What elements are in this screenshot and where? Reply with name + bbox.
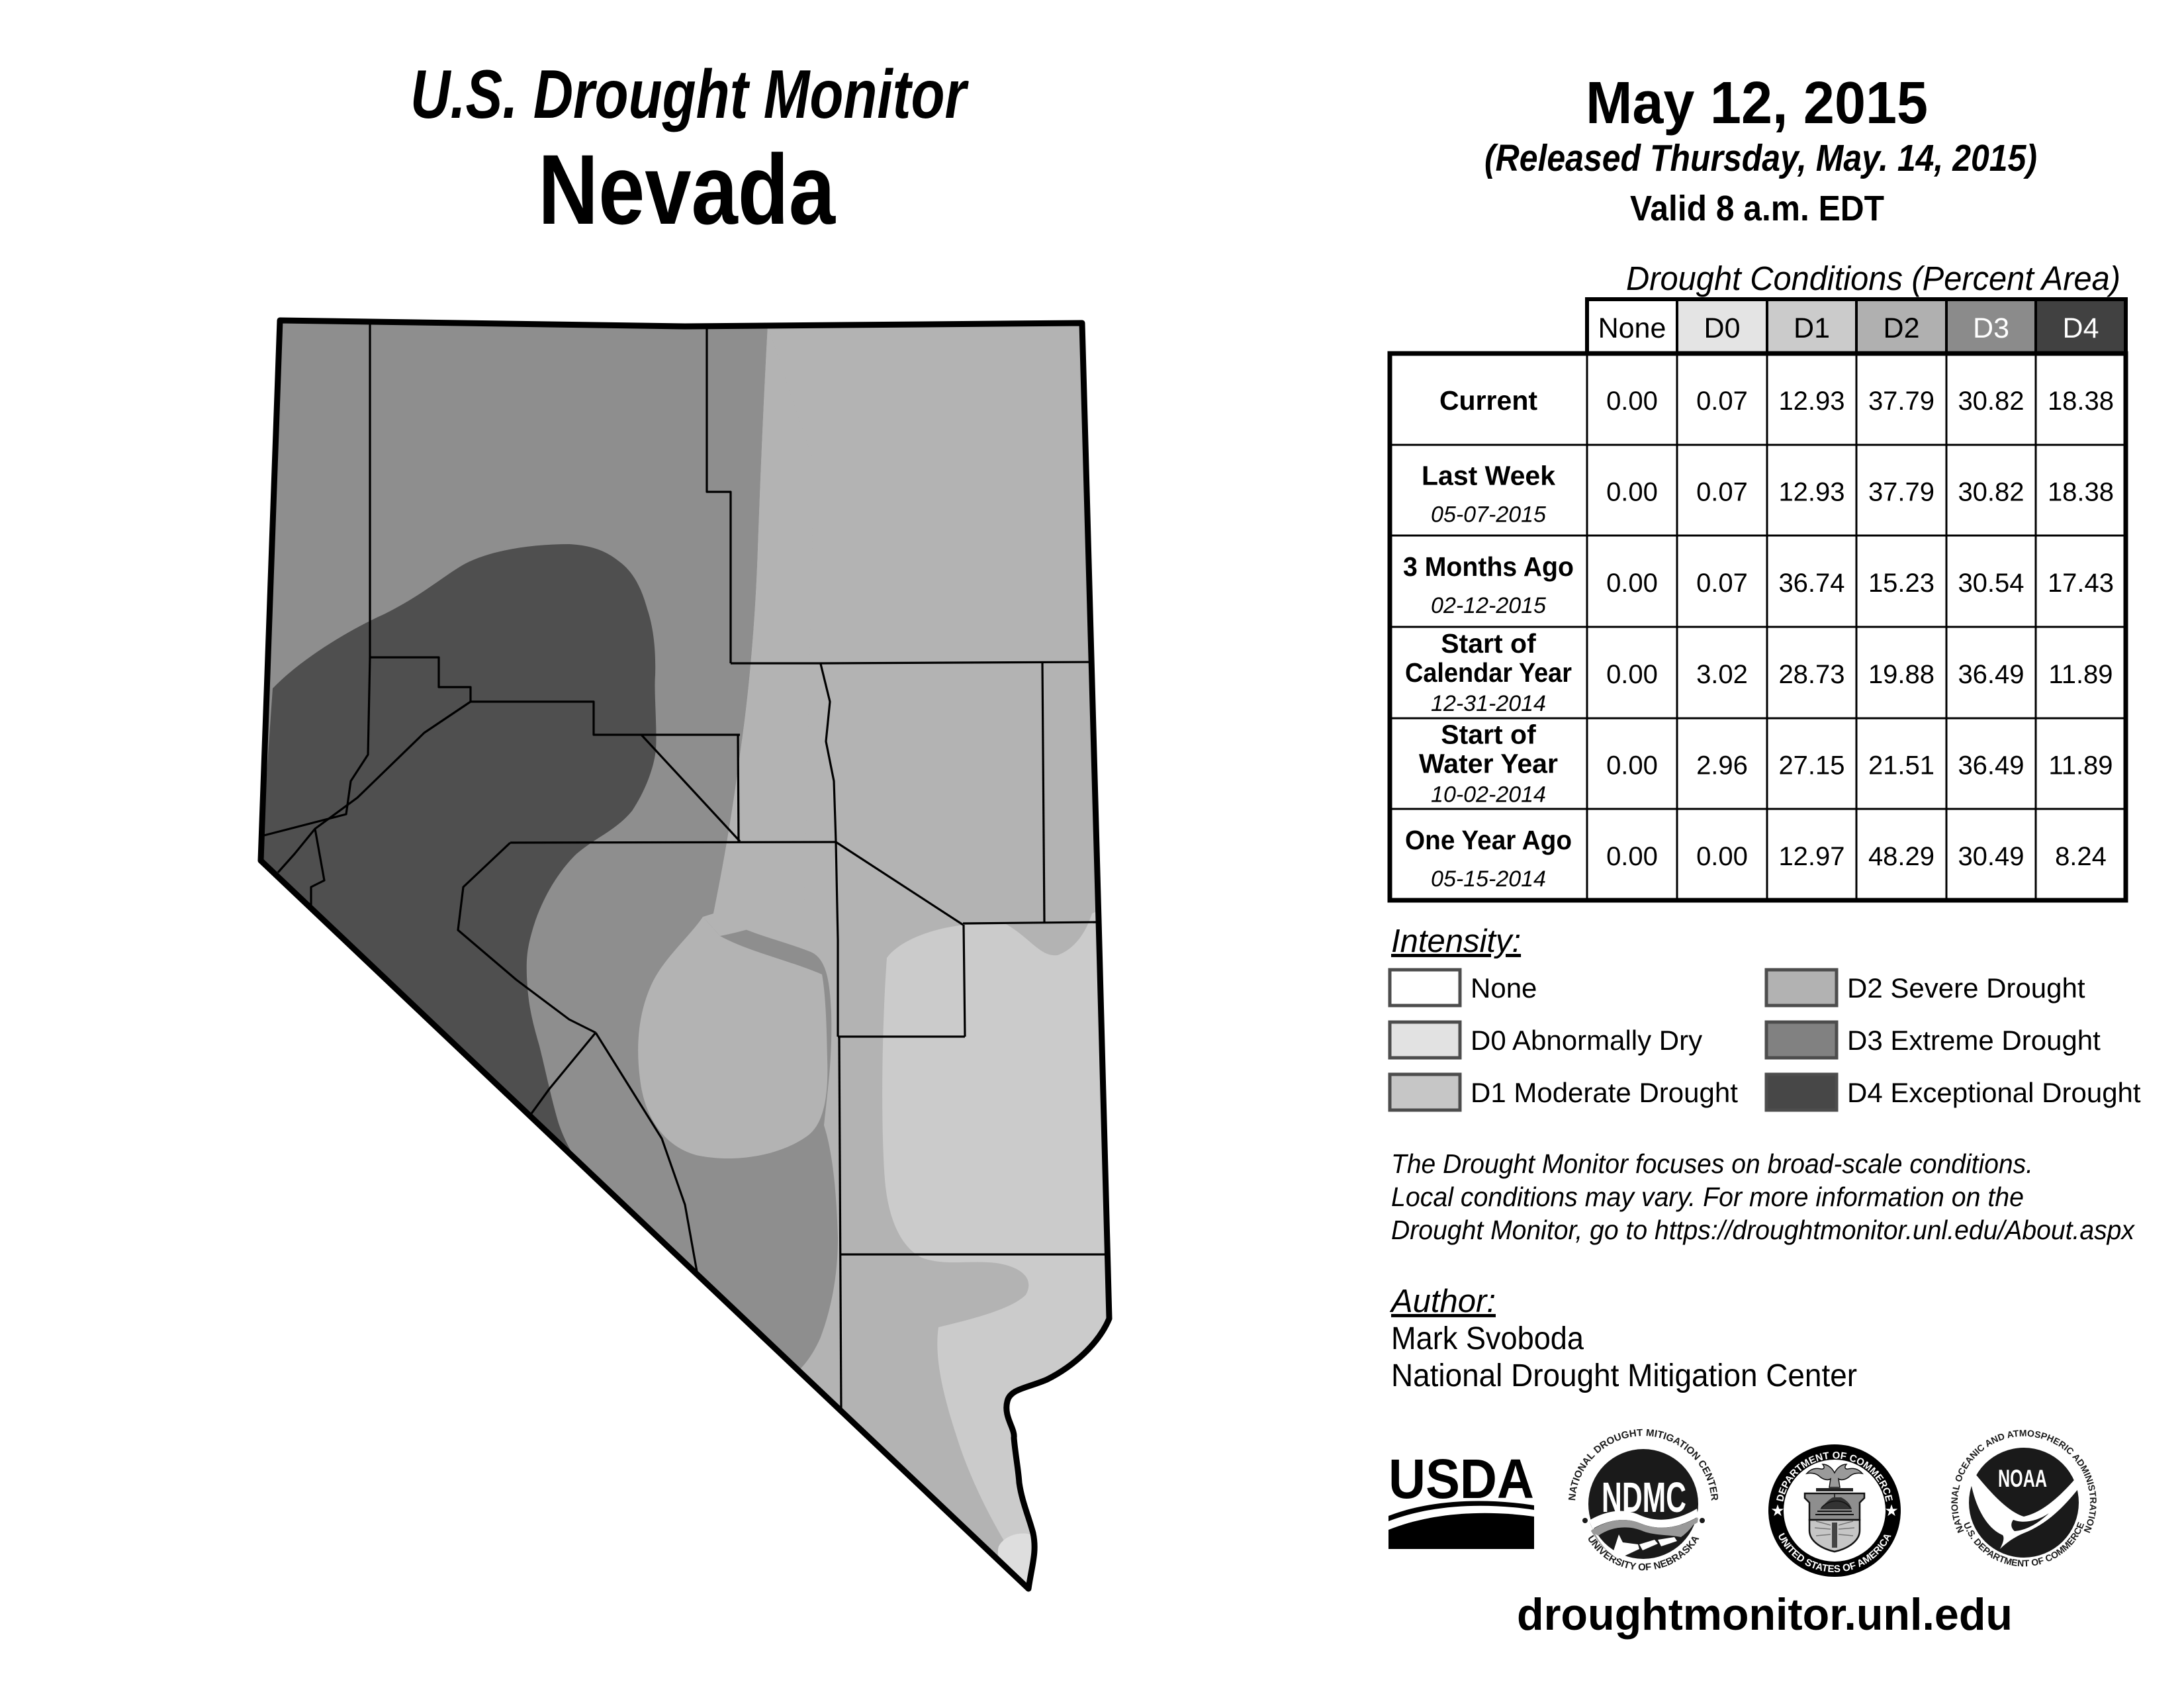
svg-text:Water Year: Water Year [1419, 749, 1558, 779]
svg-text:05-15-2014: 05-15-2014 [1431, 867, 1546, 892]
svg-text:0.07: 0.07 [1696, 569, 1748, 598]
svg-text:Valid 8 a.m. EDT: Valid 8 a.m. EDT [1630, 189, 1884, 228]
svg-text:30.82: 30.82 [1958, 387, 2024, 416]
svg-text:The Drought Monitor focuses on: The Drought Monitor focuses on broad-sca… [1391, 1149, 2033, 1179]
svg-text:11.89: 11.89 [2048, 751, 2113, 780]
svg-text:D1: D1 [1794, 312, 1830, 344]
svg-text:National Drought Mitigation Ce: National Drought Mitigation Center [1391, 1358, 1857, 1393]
svg-text:Drought Conditions (Percent Ar: Drought Conditions (Percent Area) [1626, 259, 2120, 297]
svg-text:0.00: 0.00 [1606, 478, 1658, 507]
svg-text:0.07: 0.07 [1696, 387, 1748, 416]
svg-text:D2 Severe Drought: D2 Severe Drought [1847, 972, 2085, 1004]
svg-text:Mark Svoboda: Mark Svoboda [1391, 1321, 1584, 1356]
svg-text:12.97: 12.97 [1778, 842, 1844, 871]
svg-text:Start of: Start of [1441, 628, 1536, 659]
svg-text:18.38: 18.38 [2048, 387, 2114, 416]
svg-text:D2: D2 [1884, 312, 1920, 344]
svg-text:Current: Current [1439, 385, 1537, 416]
svg-text:12.93: 12.93 [1778, 478, 1844, 507]
svg-text:D4 Exceptional Drought: D4 Exceptional Drought [1847, 1077, 2141, 1108]
svg-text:0.00: 0.00 [1696, 842, 1748, 871]
svg-text:2.96: 2.96 [1696, 751, 1748, 780]
svg-text:Calendar Year: Calendar Year [1405, 657, 1572, 688]
svg-text:One Year Ago: One Year Ago [1405, 825, 1572, 855]
svg-text:36.74: 36.74 [1778, 569, 1844, 598]
svg-text:17.43: 17.43 [2048, 569, 2114, 598]
svg-text:Start of: Start of [1441, 720, 1536, 750]
svg-text:21.51: 21.51 [1868, 751, 1934, 780]
svg-text:Intensity:: Intensity: [1391, 923, 1521, 959]
svg-text:0.00: 0.00 [1606, 387, 1658, 416]
svg-text:0.00: 0.00 [1606, 660, 1658, 689]
svg-text:D4: D4 [2063, 312, 2099, 344]
svg-text:D3 Extreme Drought: D3 Extreme Drought [1847, 1025, 2101, 1056]
svg-text:Local conditions may vary. For: Local conditions may vary. For more info… [1391, 1182, 2024, 1212]
svg-text:27.15: 27.15 [1778, 751, 1844, 780]
svg-text:3.02: 3.02 [1696, 660, 1748, 689]
svg-text:48.29: 48.29 [1868, 842, 1934, 871]
svg-text:19.88: 19.88 [1868, 660, 1934, 689]
svg-text:02-12-2015: 02-12-2015 [1431, 593, 1546, 618]
svg-text:8.24: 8.24 [2055, 842, 2107, 871]
svg-text:Nevada: Nevada [538, 134, 836, 245]
svg-text:18.38: 18.38 [2048, 478, 2114, 507]
svg-text:3 Months Ago: 3 Months Ago [1403, 551, 1574, 582]
svg-text:36.49: 36.49 [1958, 751, 2024, 780]
svg-text:★: ★ [1770, 1502, 1785, 1520]
svg-text:30.54: 30.54 [1958, 569, 2024, 598]
svg-text:None: None [1471, 972, 1537, 1004]
svg-text:D0 Abnormally Dry: D0 Abnormally Dry [1471, 1025, 1702, 1056]
svg-text:28.73: 28.73 [1778, 660, 1844, 689]
svg-text:U.S. Drought Monitor: U.S. Drought Monitor [410, 56, 969, 133]
svg-text:12-31-2014: 12-31-2014 [1431, 691, 1546, 716]
svg-text:12.93: 12.93 [1778, 387, 1844, 416]
svg-text:0.00: 0.00 [1606, 842, 1658, 871]
svg-text:USDA: USDA [1388, 1448, 1534, 1510]
svg-text:05-07-2015: 05-07-2015 [1431, 502, 1546, 528]
svg-text:0.00: 0.00 [1606, 751, 1658, 780]
svg-text:★: ★ [1884, 1502, 1899, 1520]
svg-text:37.79: 37.79 [1868, 478, 1934, 507]
svg-text:0.00: 0.00 [1606, 569, 1658, 598]
svg-text:0.07: 0.07 [1696, 478, 1748, 507]
svg-text:Drought Monitor, go to https:/: Drought Monitor, go to https://droughtmo… [1391, 1215, 2135, 1245]
svg-text:30.82: 30.82 [1958, 478, 2024, 507]
svg-text:37.79: 37.79 [1868, 387, 1934, 416]
svg-text:(Released Thursday, May. 14, 2: (Released Thursday, May. 14, 2015) [1484, 137, 2037, 179]
svg-text:droughtmonitor.unl.edu: droughtmonitor.unl.edu [1517, 1589, 2013, 1640]
svg-text:15.23: 15.23 [1868, 569, 1934, 598]
svg-text:NOAA: NOAA [1998, 1465, 2047, 1492]
svg-text:May 12, 2015: May 12, 2015 [1586, 70, 1928, 136]
svg-text:Author:: Author: [1389, 1284, 1496, 1319]
svg-text:D0: D0 [1704, 312, 1741, 344]
svg-text:36.49: 36.49 [1958, 660, 2024, 689]
svg-text:None: None [1598, 312, 1666, 344]
svg-text:Last Week: Last Week [1422, 461, 1555, 491]
svg-text:10-02-2014: 10-02-2014 [1431, 782, 1546, 808]
svg-text:11.89: 11.89 [2048, 660, 2113, 689]
svg-text:30.49: 30.49 [1958, 842, 2024, 871]
svg-text:D3: D3 [1973, 312, 2009, 344]
svg-text:D1 Moderate Drought: D1 Moderate Drought [1471, 1077, 1738, 1108]
